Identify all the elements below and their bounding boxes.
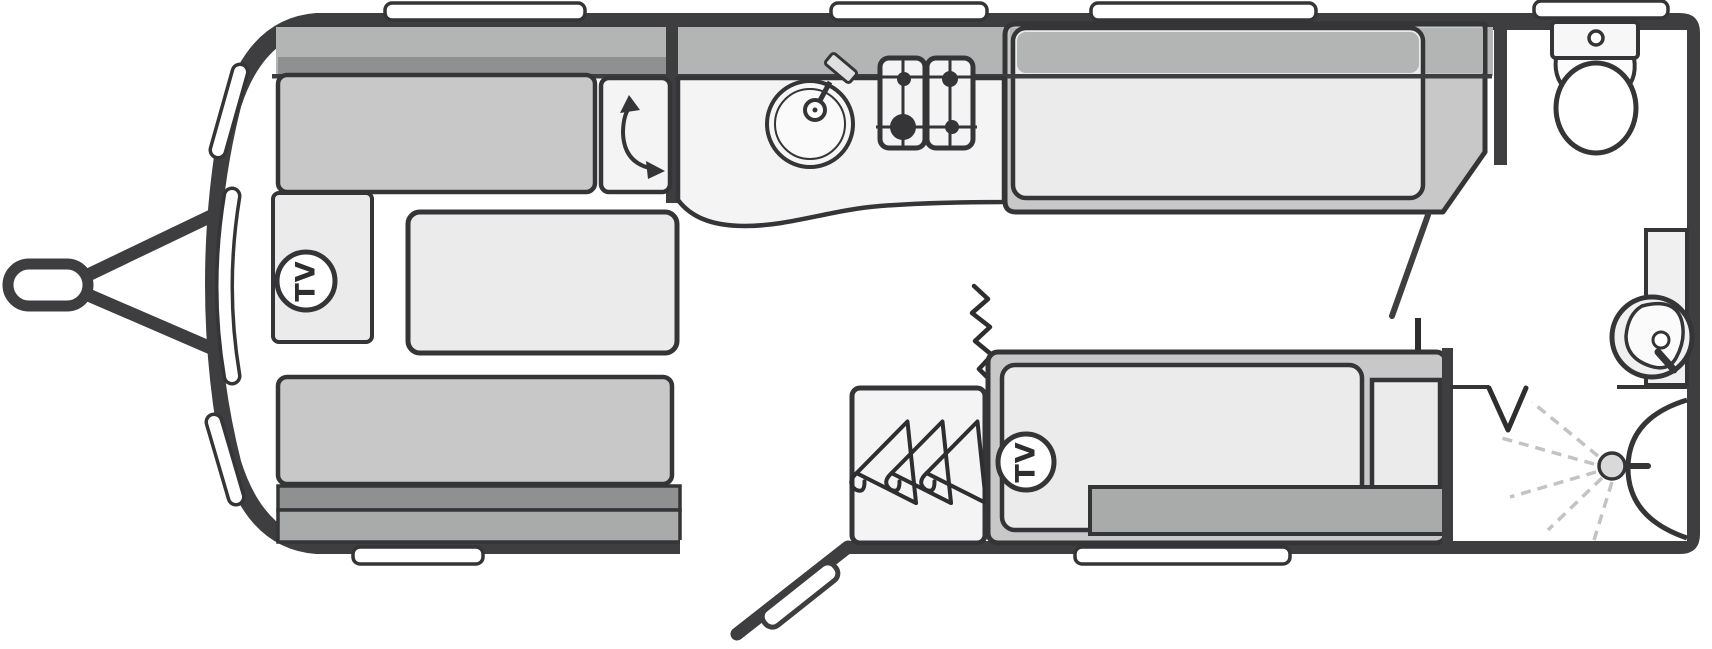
window-bottom-2 — [1075, 547, 1290, 564]
caravan-floorplan: TV — [0, 0, 1712, 649]
bed-base-band — [1090, 487, 1446, 534]
sofa-bottom-base — [278, 510, 680, 542]
table — [408, 212, 677, 353]
tv-marker-bedroom: TV — [998, 434, 1054, 490]
tow-hitch — [8, 264, 88, 306]
single-bed-offside — [1005, 24, 1485, 212]
window-top-3 — [1091, 3, 1316, 20]
washroom-wall-upper — [1494, 13, 1507, 165]
sofa-bottom-backrest — [278, 486, 680, 510]
tv-label-front: TV — [291, 260, 322, 301]
front-lounge: TV — [273, 75, 680, 542]
tv-marker-front: TV — [277, 252, 335, 310]
single-bed-nearside: TV — [988, 318, 1446, 543]
window-top-2 — [831, 3, 987, 20]
window-washroom — [1534, 1, 1668, 18]
sofa-bottom — [278, 377, 672, 484]
hob-icon — [876, 56, 977, 150]
locker — [601, 78, 670, 192]
tv-label-bedroom: TV — [1011, 441, 1042, 482]
window-bottom-1 — [353, 547, 483, 564]
entrance-door — [680, 540, 850, 634]
kitchen — [678, 52, 1004, 226]
window-top-1 — [385, 3, 585, 20]
washroom-wall-lower — [1442, 348, 1453, 554]
toilet-icon — [1552, 22, 1638, 153]
wardrobe — [845, 388, 986, 543]
sofa-top — [278, 75, 595, 192]
